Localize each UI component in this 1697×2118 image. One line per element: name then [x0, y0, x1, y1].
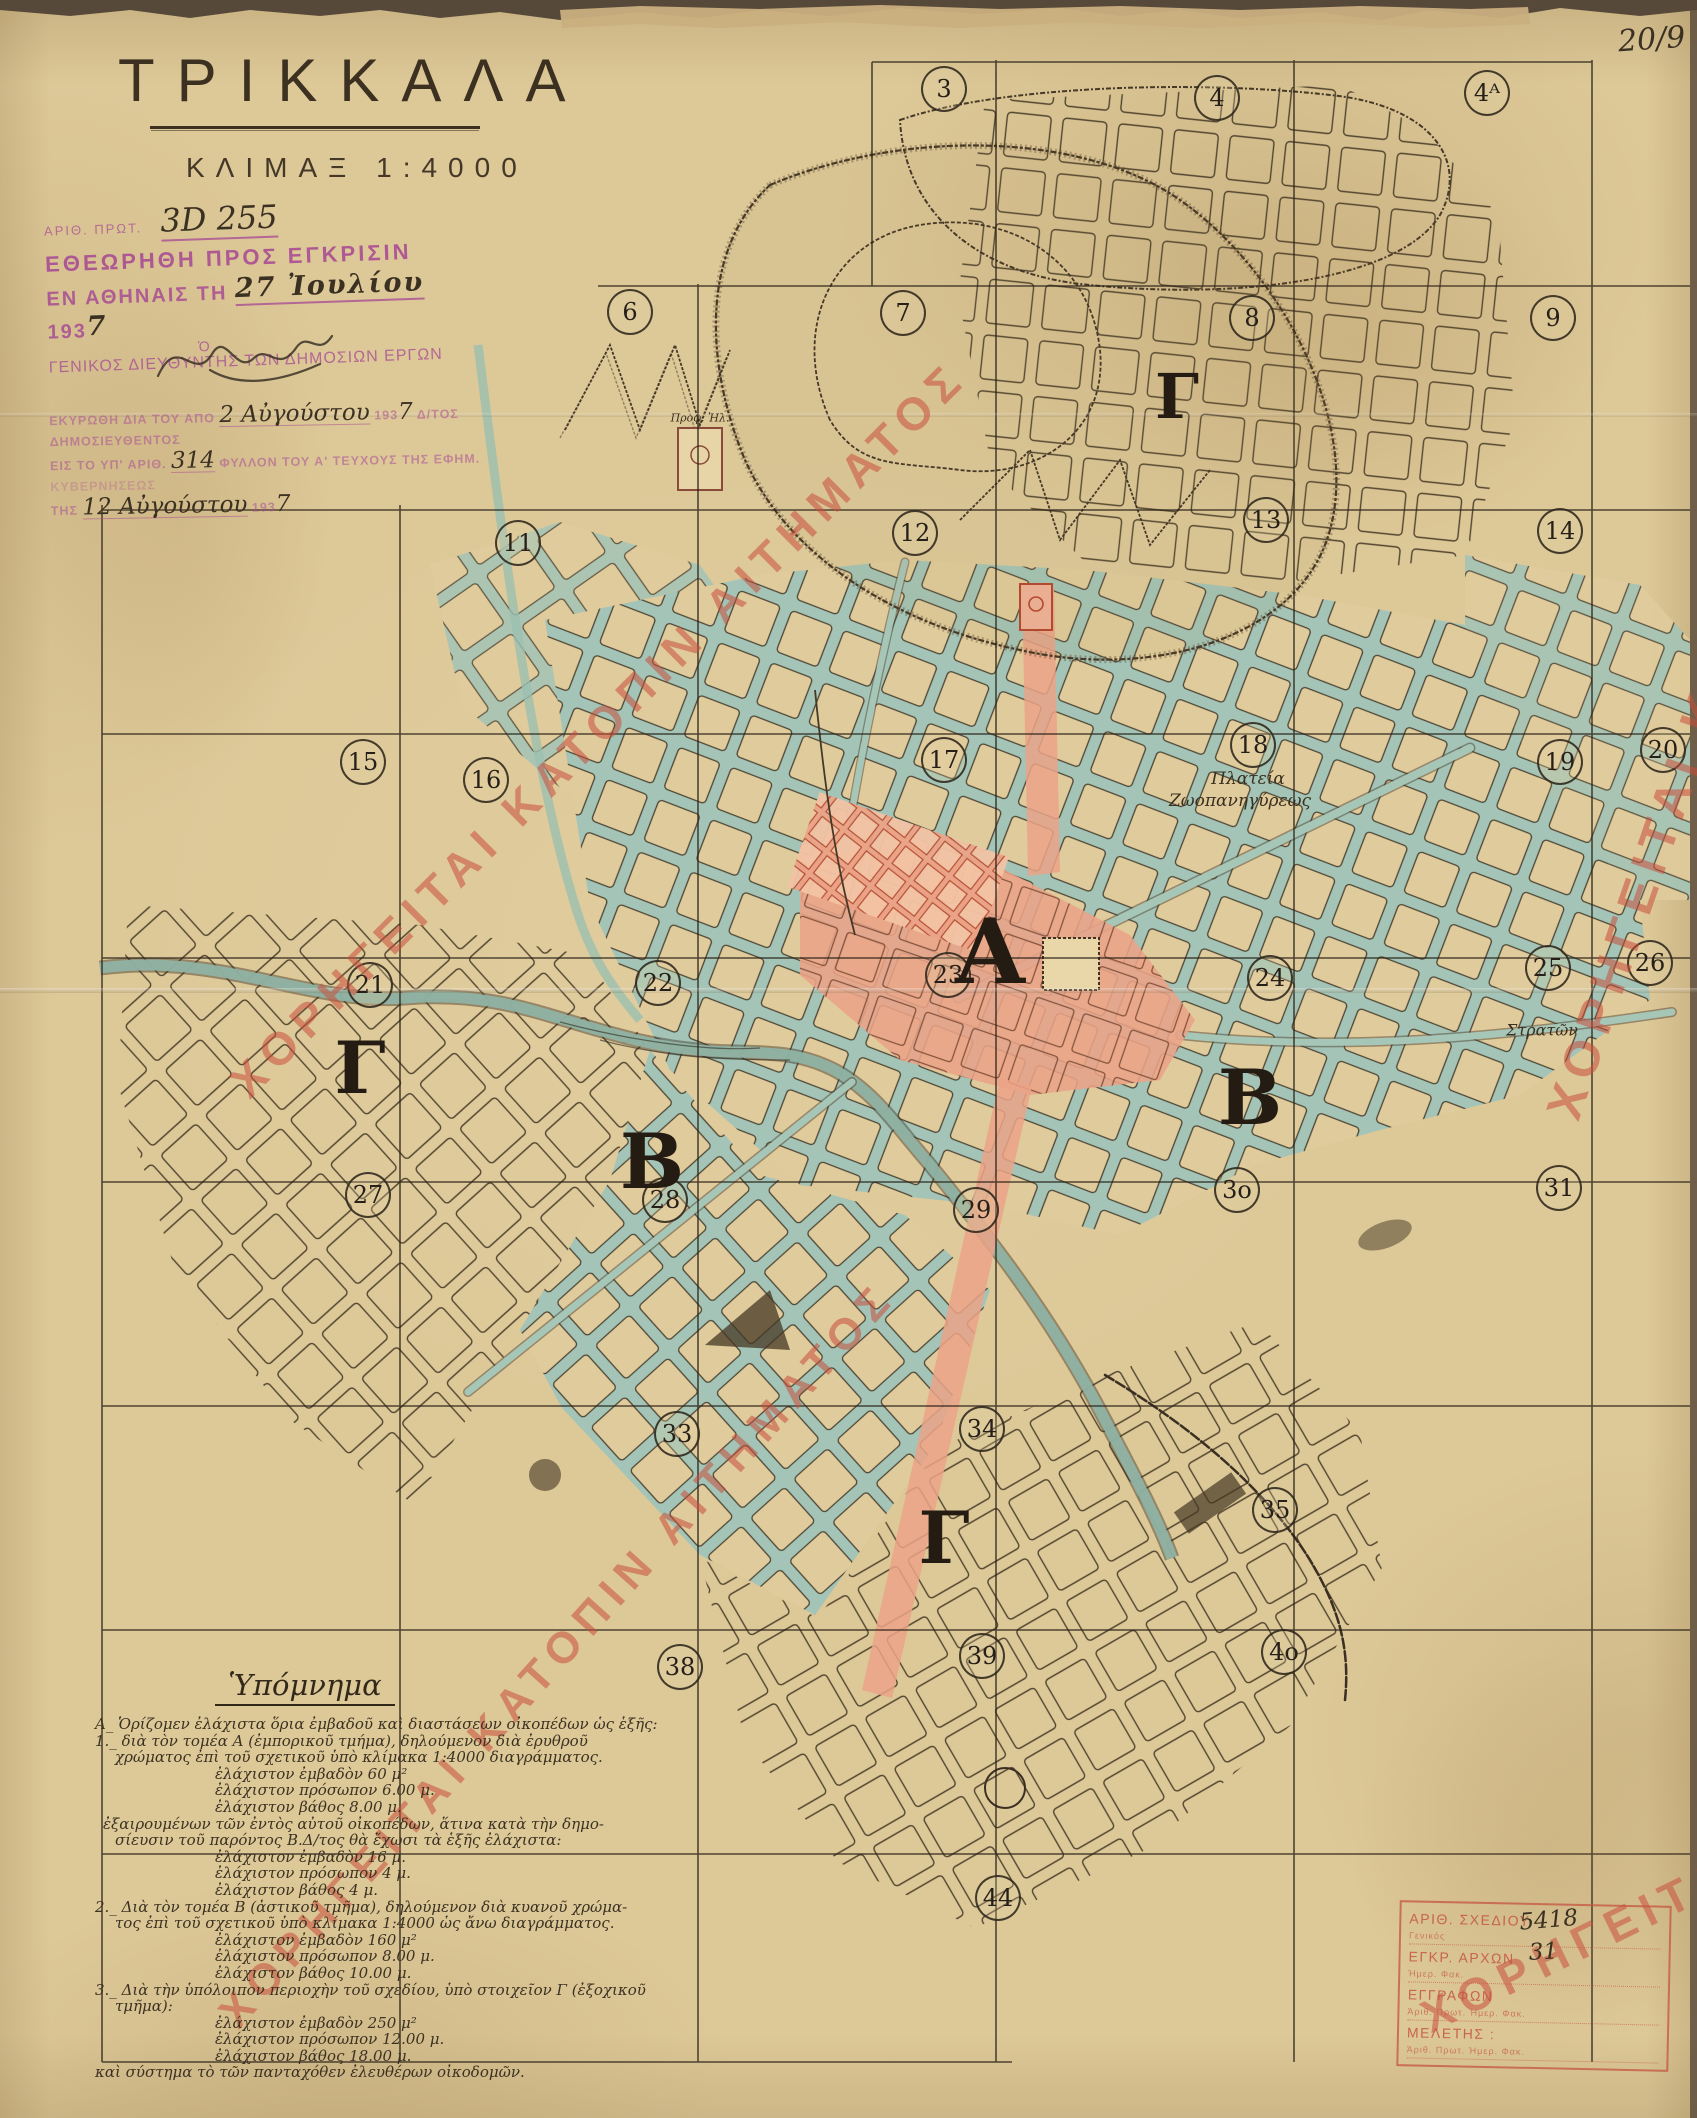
legend-line: ἐλάχιστον ἐμβαδὸν 16 μ. [95, 1849, 695, 1866]
grid-cell-number: 34 [959, 1406, 1005, 1452]
legend-line: ἐλάχιστον βάθος 8.00 μ. [95, 1799, 695, 1816]
grid-cell-number: 6 [607, 289, 653, 335]
ratif-date2-handwritten: 12 Αὐγούστου [82, 495, 247, 520]
grid-cell-number: 11 [495, 520, 541, 566]
grid-cell-number: 22 [635, 960, 681, 1006]
grid-cell-number: 20 [1640, 727, 1686, 773]
grid-cell-number: 12 [892, 510, 938, 556]
grid-cell-number: 13 [1243, 497, 1289, 543]
legend-line: τμῆμα): [95, 1998, 695, 2015]
sector-letter: Γ [334, 1032, 385, 1104]
signature [150, 318, 340, 398]
legend-heading: Ὑπόμνημα [215, 1668, 395, 1706]
grid-cell-number: 7 [880, 290, 926, 336]
registry-row-sublabels: Ἀριθ. Πρωτ. Ἡμερ. Φακ. [1407, 2044, 1659, 2059]
protocol-label: ΑΡΙΘ. ΠΡΩΤ. [44, 220, 143, 238]
grid-cell-number: 18 [1230, 722, 1276, 768]
map-sheet: ΤΡΙΚΚΑΛΑ ΚΛΙΜΑΞ 1:4000 20/9 ΑΡΙΘ. ΠΡΩΤ. … [0, 0, 1697, 2118]
legend-line: ἐλάχιστον ἐμβαδὸν 160 μ² [95, 1932, 695, 1949]
approval-year: 193 [47, 320, 87, 343]
legend-line: τος ἐπὶ τοῦ σχετικοῦ ὑπὸ κλίμακα 1:4000 … [95, 1915, 695, 1932]
legend-line: ἐλάχιστον ἐμβαδὸν 250 μ² [95, 2015, 695, 2032]
map-label: Ζωοπανηγύρεως [1169, 791, 1311, 811]
ratif-l2a: ΕΙΣ ΤΟ ΥΠ' ΑΡΙΘ. [50, 457, 167, 473]
legend-line: ἐλάχιστον πρόσωπον 6.00 μ. [95, 1782, 695, 1799]
legend-line: 2._ Διὰ τὸν τομέα Β (ἀστικοῦ τμῆμα), δηλ… [95, 1899, 695, 1916]
legend-lines: Α_ Ὁρίζομεν ἐλάχιστα ὅρια ἐμβαδοῦ καὶ δι… [95, 1716, 695, 2081]
protocol-number: 3D 255 [160, 198, 279, 242]
registry-stamp: ΑΡΙΘ. ΣΧΕΔΙΟΥΓενικόςΕΓΚΡ. ΑΡΧΩΝἩμερ. Φακ… [1396, 1900, 1671, 2072]
legend-line: ἐλάχιστον πρόσωπον 12.00 μ. [95, 2031, 695, 2048]
map-label: Πλατεία [1211, 769, 1285, 789]
approval-year-handwritten: 7 [86, 311, 108, 343]
grid-cell-number: 16 [463, 757, 509, 803]
grid-cell-number: 27 [345, 1172, 391, 1218]
map-label: Προφ. Ἠλ. [671, 412, 730, 425]
grid-cell-number: 31 [1536, 1165, 1582, 1211]
registry-row-sublabels: Ἀριθ. Πρωτ. Ἡμερ. Φακ. [1407, 2006, 1659, 2021]
grid-cell-number: 8 [1229, 295, 1275, 341]
ratif-year1: 193 [374, 408, 398, 422]
registry-row-label: ΜΕΛΕΤΗΣ : [1407, 2024, 1496, 2042]
approval-date-handwritten: 27 Ἰουλίου [234, 266, 424, 306]
grid-cell-number: 19 [1537, 739, 1583, 785]
registry-row-label: ΑΡΙΘ. ΣΧΕΔΙΟΥ [1409, 1910, 1530, 1929]
grid-cell-number: 4o [1261, 1629, 1307, 1675]
grid-cell-number: 14 [1537, 508, 1583, 554]
grid-cell-number: 35 [1252, 1487, 1298, 1533]
legend-line: καὶ σύστημα τὸ τῶν πανταχόθεν ἐλευθέρων … [95, 2064, 695, 2081]
scale-label: ΚΛΙΜΑΞ 1:4000 [186, 152, 528, 184]
grid-cell-number: 24 [1247, 955, 1293, 1001]
grid-cell-number: 4 [1194, 75, 1240, 121]
legend-line: ἐλάχιστον πρόσωπον 4 μ. [95, 1865, 695, 1882]
ratif-year2-hand: 7 [276, 491, 291, 517]
legend-line: 1._ διὰ τὸν τομέα Α (ἐμπορικοῦ τμήμα), δ… [95, 1733, 695, 1750]
legend-line: ἐλάχιστον βάθος 4 μ. [95, 1882, 695, 1899]
ratif-year2: 193 [252, 500, 276, 514]
sheet-number-note: 20/9 [1617, 20, 1687, 60]
grid-cell-number: 3o [1214, 1167, 1260, 1213]
registry-handwritten-value: 31 [1528, 1938, 1559, 1965]
registry-row: ΜΕΛΕΤΗΣ :Ἀριθ. Πρωτ. Ἡμερ. Φακ. [1406, 2020, 1659, 2063]
legend-line: ἐξαιρουμένων τῶν ἐντὸς αὐτοῦ οἰκοπέδων, … [95, 1816, 695, 1833]
grid-cell-number: 29 [953, 1187, 999, 1233]
ratif-l4a: ΤΗΣ [51, 504, 78, 518]
sector-letter: Β [620, 1124, 684, 1200]
sector-letter: Β [1218, 1060, 1282, 1136]
ratif-number-handwritten: 314 [171, 450, 215, 473]
grid-cell-number: 26 [1627, 940, 1673, 986]
grid-cell-number: 44 [975, 1875, 1021, 1921]
grid-cell-number: 25 [1525, 945, 1571, 991]
sector-letter: Γ [1155, 366, 1199, 428]
legend-line: 3._ Διὰ τὴν ὑπόλοιπον περιοχὴν τοῦ σχεδί… [95, 1982, 695, 1999]
grid-cell-number: 3 [921, 66, 967, 112]
legend-line: ἐλάχιστον ἐμβαδὸν 60 μ² [95, 1766, 695, 1783]
legend-line: ἐλάχιστον βάθος 10.00 μ. [95, 1965, 695, 1982]
grid-cell-number: 21 [347, 962, 393, 1008]
registry-handwritten-value: 5418 [1518, 1905, 1579, 1936]
registry-row-label: ΕΓΚΡ. ΑΡΧΩΝ [1408, 1948, 1514, 1966]
ratif-l1a: ΕΚΥΡΩΘΗ ΔΙΑ ΤΟΥ ΑΠΟ [49, 411, 215, 428]
ratif-l2b: ΦΥΛΛΟΝ ΤΟΥ Α' ΤΕΥΧΟΥΣ ΤΗΣ ΕΦΗΜ. [219, 452, 480, 471]
approval-place: ΕΝ ΑΘΗΝΑΙΣ ΤΗ [46, 282, 228, 310]
ratif-year1-hand: 7 [398, 399, 413, 425]
sector-letter: Α [955, 907, 1025, 997]
ratif-date1-handwritten: 2 Αὐγούστου [219, 403, 370, 428]
grid-cell-number: 4ᴬ [1464, 70, 1510, 116]
grid-cell-number: 39 [959, 1633, 1005, 1679]
legend-line: σίευσιν τοῦ παρόντος Β.Δ/τος θὰ ἔχωσι τὰ… [95, 1832, 695, 1849]
legend-line: Α_ Ὁρίζομεν ἐλάχιστα ὅρια ἐμβαδοῦ καὶ δι… [95, 1716, 695, 1733]
grid-cell-number: 9 [1530, 295, 1576, 341]
legend-line: ἐλάχιστον βάθος 18.00 μ. [95, 2048, 695, 2065]
map-title: ΤΡΙΚΚΑΛΑ [118, 46, 588, 115]
legend: Ὑπόμνημα Α_ Ὁρίζομεν ἐλάχιστα ὅρια ἐμβαδ… [95, 1668, 695, 2081]
legend-line: ἐλάχιστον πρόσωπον 8.00 μ. [95, 1948, 695, 1965]
grid-cell-number: 15 [340, 739, 386, 785]
registry-row-sublabels: Ἡμερ. Φακ. [1408, 1968, 1660, 1983]
map-label: Στρατῶν [1506, 1021, 1578, 1040]
grid-cell-number: 33 [654, 1411, 700, 1457]
registry-row-label: ΕΓΓΡΑΦΩΝ [1408, 1986, 1494, 2004]
sector-letter: Γ [918, 1502, 969, 1574]
ratification-stamp: ΕΚΥΡΩΘΗ ΔΙΑ ΤΟΥ ΑΠΟ 2 Αὐγούστου 1937 Δ/Τ… [49, 400, 521, 522]
legend-line: χρώματος ἐπὶ τοῦ σχετικοῦ ὑπὸ κλίμακα 1:… [95, 1749, 695, 1766]
registry-row: ΕΓΓΡΑΦΩΝἈριθ. Πρωτ. Ἡμερ. Φακ. [1407, 1982, 1660, 2025]
grid-cell-number: 17 [921, 737, 967, 783]
title-underline [150, 126, 480, 129]
